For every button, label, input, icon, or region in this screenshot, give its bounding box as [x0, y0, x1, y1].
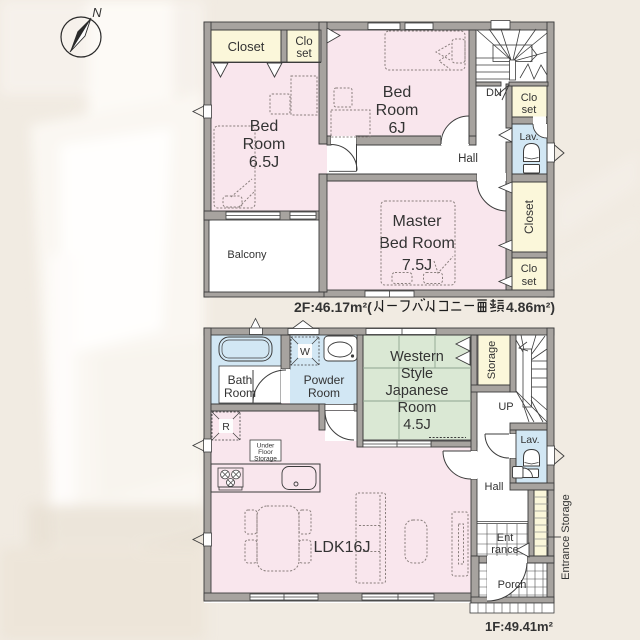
svg-text:Hall: Hall [458, 153, 478, 165]
svg-text:Lav.: Lav. [520, 434, 539, 446]
svg-text:Balcony: Balcony [227, 249, 267, 261]
svg-text:LDK16J: LDK16J [314, 539, 371, 556]
svg-text:Bath: Bath [228, 373, 253, 387]
svg-text:Style: Style [401, 366, 433, 382]
svg-text:Clo: Clo [521, 92, 538, 104]
svg-text:4.5J: 4.5J [403, 417, 430, 433]
svg-text:Clo: Clo [295, 36, 312, 48]
svg-text:Closet: Closet [228, 39, 265, 54]
svg-text:Lav.: Lav. [519, 131, 538, 143]
svg-text:1F:49.41m²: 1F:49.41m² [485, 619, 554, 634]
svg-text:Bed Room: Bed Room [379, 235, 455, 252]
svg-text:N: N [92, 5, 102, 20]
svg-text:Western: Western [390, 349, 444, 365]
svg-text:Master: Master [393, 213, 443, 230]
svg-text:6J: 6J [389, 120, 406, 137]
svg-text:set: set [296, 48, 312, 60]
svg-text:Storage: Storage [254, 456, 277, 463]
svg-text:DN: DN [486, 87, 502, 99]
svg-text:Room: Room [308, 386, 340, 400]
svg-text:Entrance Storage: Entrance Storage [560, 494, 572, 580]
svg-text:7.5J: 7.5J [402, 257, 432, 274]
svg-text:R: R [222, 421, 230, 433]
svg-text:6.5J: 6.5J [249, 154, 279, 171]
svg-text:2F:46.17m²(: 2F:46.17m²( [294, 299, 372, 315]
svg-text:Ent: Ent [497, 532, 514, 544]
svg-text:Hall: Hall [485, 481, 504, 493]
svg-text:UP: UP [498, 401, 513, 413]
svg-text:Japanese: Japanese [386, 383, 449, 399]
svg-text:Room: Room [243, 136, 286, 153]
svg-text:Clo: Clo [521, 263, 538, 275]
svg-text:Room: Room [398, 400, 437, 416]
svg-text:Bed: Bed [383, 84, 411, 101]
svg-text:Room: Room [376, 102, 419, 119]
svg-text:set: set [522, 104, 537, 116]
svg-text:Porch: Porch [498, 579, 527, 591]
svg-text:rance: rance [491, 544, 519, 556]
svg-text:Bed: Bed [250, 118, 278, 135]
svg-text:4.86m²): 4.86m²) [506, 299, 555, 315]
svg-text:Closet: Closet [522, 199, 536, 234]
svg-text:Powder: Powder [304, 373, 345, 387]
svg-text:set: set [522, 276, 537, 288]
svg-text:Room: Room [224, 386, 256, 400]
svg-text:W: W [300, 346, 310, 358]
svg-text:Storage: Storage [486, 341, 498, 380]
